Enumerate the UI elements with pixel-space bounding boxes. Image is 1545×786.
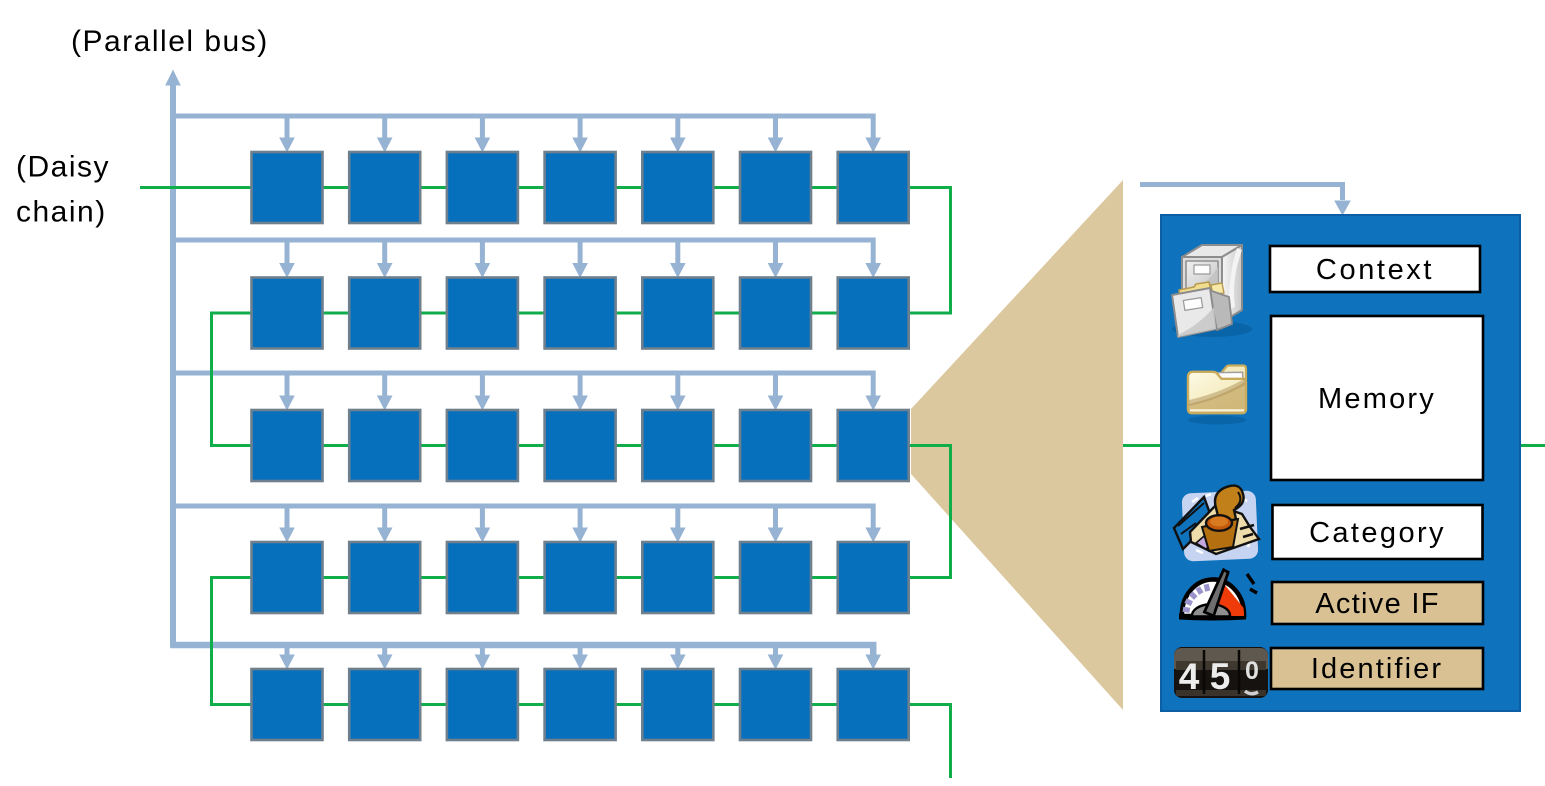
svg-text:4: 4: [1179, 656, 1200, 697]
svg-text:chain): chain): [16, 196, 107, 229]
svg-text:Identifier: Identifier: [1311, 653, 1443, 685]
svg-text:(Daisy: (Daisy: [16, 151, 110, 184]
svg-text:5: 5: [1210, 656, 1231, 697]
svg-text:Context: Context: [1316, 254, 1434, 286]
svg-text:0: 0: [1245, 657, 1259, 685]
svg-text:Category: Category: [1309, 517, 1446, 549]
svg-text:Memory: Memory: [1318, 383, 1436, 415]
svg-text:Active IF: Active IF: [1315, 588, 1440, 620]
svg-text:(Parallel bus): (Parallel bus): [71, 25, 269, 58]
